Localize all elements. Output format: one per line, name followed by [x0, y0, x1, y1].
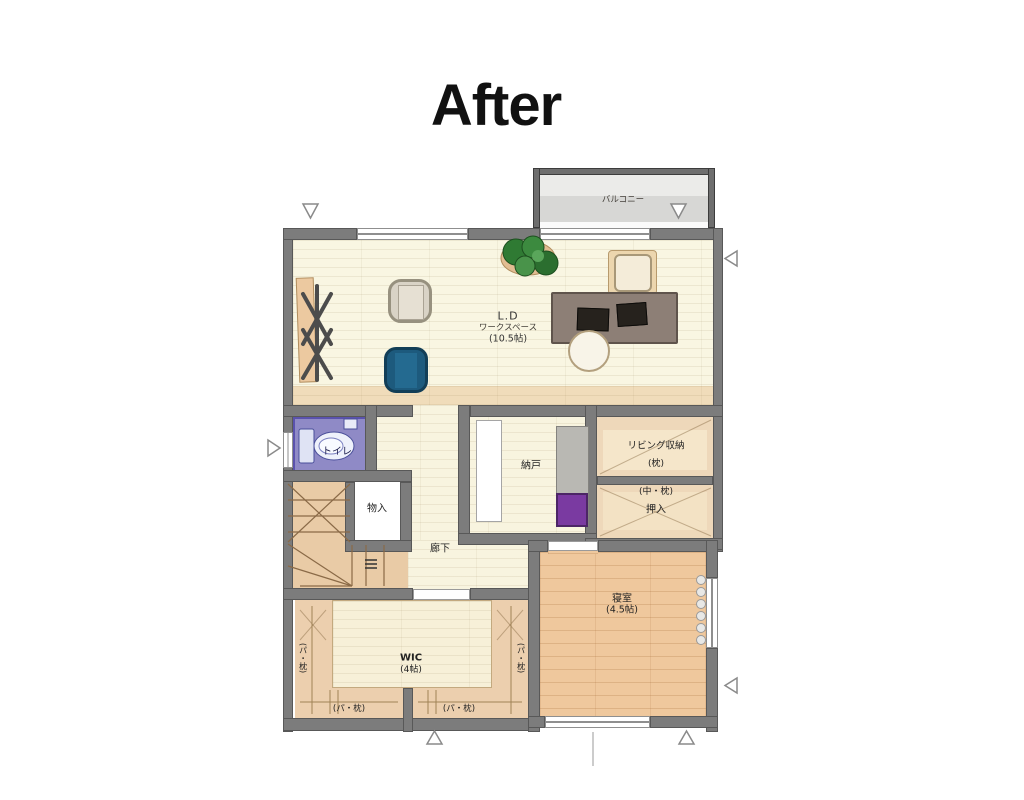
bedroom-floor	[540, 552, 706, 716]
bedroom-label: 寝室	[612, 593, 632, 605]
desk-chair-bottom	[568, 330, 610, 372]
wall	[283, 470, 412, 482]
armchair-gray	[388, 279, 432, 323]
wall	[400, 482, 412, 544]
wic-size-label: (4帖)	[400, 665, 422, 675]
wall	[533, 168, 540, 228]
wall	[650, 716, 718, 728]
wic-left-label: (パ・枕)	[298, 643, 307, 673]
wall	[706, 540, 718, 578]
wall	[708, 168, 715, 228]
hallway-label: 廊下	[430, 543, 450, 555]
wic-right-label: (パ・枕)	[516, 643, 525, 673]
nando-label: 納戸	[521, 460, 541, 472]
wall	[528, 716, 545, 728]
wic-bottom-left-label: (パ・枕)	[333, 705, 365, 715]
ld-size-label: (10.5帖)	[489, 335, 527, 346]
window	[357, 228, 468, 240]
armchair-blue-seat	[395, 353, 417, 388]
wall	[345, 482, 355, 544]
ld-sublabel: ワークスペース	[479, 324, 537, 334]
wall	[403, 688, 413, 732]
wall	[283, 588, 413, 600]
wic-entry-door	[413, 589, 470, 600]
nando-door-panel	[476, 420, 502, 522]
wall	[283, 228, 357, 240]
armchair-gray-seat	[398, 285, 424, 320]
wall	[598, 540, 718, 552]
stairs-floor	[285, 482, 352, 600]
bedroom-door	[548, 541, 598, 551]
balcony-label: バルコニー	[602, 196, 644, 206]
bedroom-size-label: (4.5帖)	[606, 606, 638, 617]
wall	[533, 168, 715, 175]
oshiire-sublabel: (中・枕)	[639, 487, 673, 497]
nando-purple-box	[556, 493, 588, 527]
living-storage-sublabel: (枕)	[648, 459, 664, 469]
wall	[458, 405, 470, 545]
wic-label: WIC	[400, 652, 422, 664]
wall	[468, 228, 540, 240]
floor-plan-page: After	[0, 0, 1024, 800]
oshiire-label: 押入	[646, 504, 666, 516]
wall	[345, 540, 412, 552]
bedroom-bottom-window	[545, 716, 650, 728]
wall	[528, 540, 540, 732]
toilet-label: トイレ	[322, 446, 352, 458]
living-storage-label: リビング収納	[627, 442, 684, 453]
wic-bottom-right-label: (パ・枕)	[443, 705, 475, 715]
bedroom-side-window	[706, 578, 718, 648]
wall	[283, 405, 413, 417]
storage-small-label: 物入	[367, 503, 387, 515]
ld-label: L.D	[497, 311, 518, 324]
wall	[597, 476, 713, 485]
monitor-right	[616, 302, 648, 327]
wall	[713, 228, 723, 552]
balcony-door	[540, 228, 650, 240]
armchair-blue	[384, 347, 428, 393]
toilet-window	[283, 432, 293, 468]
page-title: After	[0, 72, 1008, 139]
monitor-left	[577, 307, 610, 331]
desk	[551, 292, 678, 344]
wall	[528, 540, 548, 552]
desk-chair-top	[614, 254, 652, 292]
